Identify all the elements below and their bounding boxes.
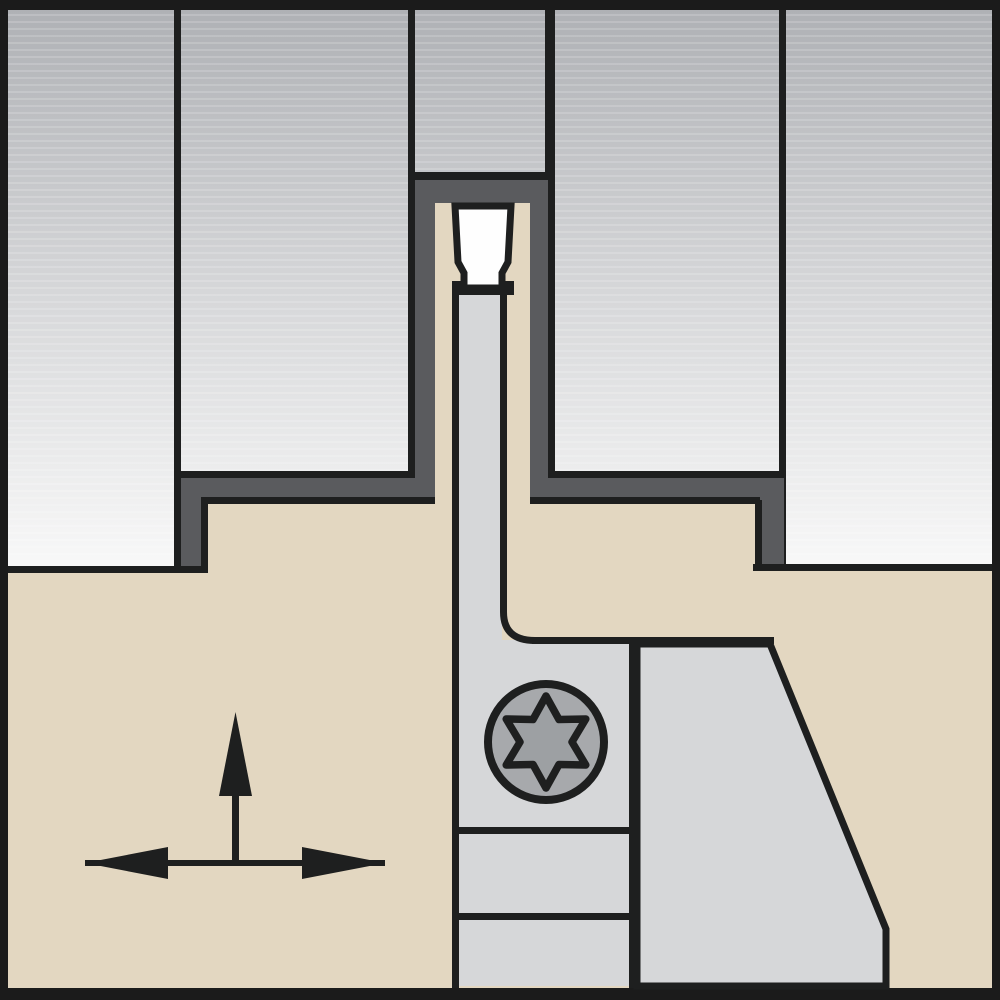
slot-outline [528, 497, 760, 504]
panel-bottom-line [408, 172, 555, 180]
slot-right-wall [527, 180, 548, 500]
panel-divider-line [408, 10, 415, 478]
torx-screw-icon [488, 684, 604, 800]
body-top-line [532, 637, 774, 644]
slot-outline [755, 500, 762, 564]
cutting-insert [455, 206, 511, 288]
tool-cross-section-diagram [0, 0, 1000, 1000]
workpiece-texture [415, 10, 545, 173]
panel-bottom-line [174, 471, 437, 478]
blade-left-edge-line [452, 285, 459, 988]
body-vertical-line [629, 640, 637, 988]
slot-left-step [181, 478, 203, 566]
shank-strip-right [511, 203, 530, 505]
slot-outline [201, 497, 437, 504]
body-divider-line [456, 913, 632, 920]
slot-right-shoulder [527, 478, 784, 500]
workpiece-texture [555, 10, 779, 472]
body-divider-line [456, 827, 632, 834]
slot-outline [201, 500, 208, 566]
panel-divider-line [174, 10, 181, 572]
workpiece-texture [8, 10, 174, 569]
panel-bottom-line [753, 564, 992, 571]
blade [459, 293, 502, 653]
slot-left-shoulder [181, 478, 435, 500]
slot-right-step [762, 500, 784, 564]
panel-bottom-line [8, 566, 208, 573]
diagram-canvas [0, 0, 1000, 1000]
workpiece-texture [181, 10, 408, 472]
panel-bottom-line [528, 471, 786, 478]
blade-right-edge-line [500, 285, 507, 612]
slot-left-wall [415, 180, 435, 500]
up-arrow-stem [232, 793, 239, 863]
workpiece-texture [786, 10, 992, 566]
